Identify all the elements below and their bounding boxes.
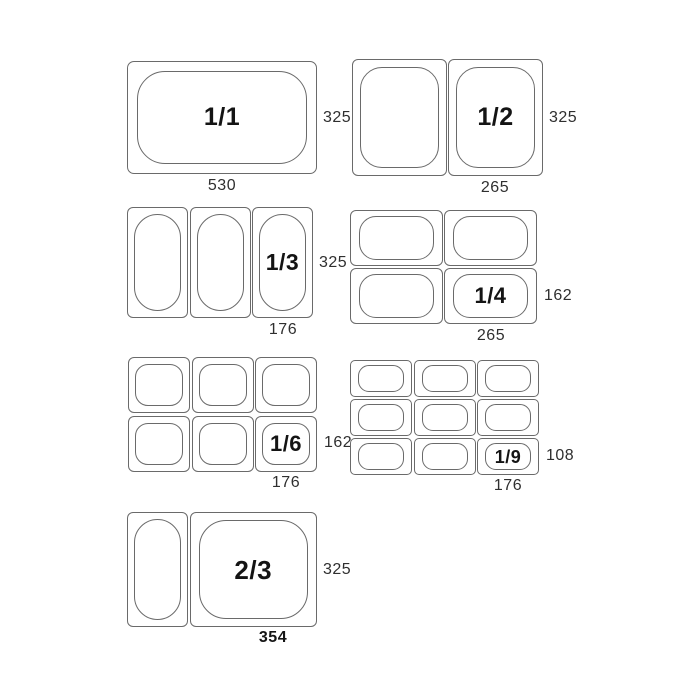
dimension-width-label: 265: [481, 180, 509, 196]
pan-1-2: [352, 59, 447, 176]
pan-1-9: [350, 399, 412, 436]
pan-opening: [422, 443, 468, 470]
pan-1-4: [350, 268, 443, 324]
pan-opening: [358, 404, 404, 431]
pan-opening: [134, 214, 181, 311]
pan-1-9: [414, 360, 476, 397]
diagram-gn-2-3: 2/3 325 354: [127, 512, 317, 627]
pan-1-4: [350, 210, 443, 266]
pan-1-9: [350, 360, 412, 397]
diagram-gn-1-6: 1/6 162 176: [128, 357, 318, 472]
pan-opening: [199, 364, 247, 406]
pan-1-6: [128, 416, 190, 472]
pan-size-label: 1/6: [270, 433, 302, 455]
dimension-height-label: 325: [323, 110, 351, 126]
pan-1-9: [350, 438, 412, 475]
pan-1-9: [414, 399, 476, 436]
pan-opening: [360, 67, 439, 168]
pan-1-6: [192, 357, 254, 413]
dimension-height-label: 325: [319, 255, 347, 271]
pan-1-2: 1/2: [448, 59, 543, 176]
pan-opening: [262, 364, 310, 406]
dimension-height-label: 325: [549, 110, 577, 126]
pan-opening: [135, 364, 183, 406]
pan-opening: 1/1: [137, 71, 307, 164]
pan-opening: [359, 274, 434, 318]
pan-opening: 1/9: [485, 443, 531, 470]
dimension-width-label: 354: [259, 630, 287, 646]
dimension-width-label: 265: [477, 328, 505, 344]
pan-opening: [134, 519, 181, 620]
pan-1-9: [414, 438, 476, 475]
pan-size-label: 1/3: [266, 251, 299, 274]
pan-opening: 2/3: [199, 520, 309, 619]
dimension-width-label: 530: [208, 178, 236, 194]
dimension-width-label: 176: [494, 478, 522, 494]
pan-size-label: 1/4: [474, 285, 506, 307]
dimension-height-label: 325: [323, 562, 351, 578]
pan-opening: 1/6: [262, 423, 310, 465]
pan-1-3: [127, 512, 188, 627]
pan-opening: [485, 365, 531, 392]
pan-2-3: 2/3: [190, 512, 318, 627]
pan-size-label: 1/9: [495, 448, 522, 466]
diagram-gn-1-2: 1/2 325 265: [352, 59, 543, 176]
pan-opening: 1/4: [453, 274, 528, 318]
pan-1-9: [477, 399, 539, 436]
pan-1-4: 1/4: [444, 268, 537, 324]
pan-opening: [422, 404, 468, 431]
pan-1-9: [477, 360, 539, 397]
pan-opening: [199, 423, 247, 465]
pan-opening: 1/2: [456, 67, 535, 168]
pan-opening: [358, 365, 404, 392]
pan-size-label: 1/2: [477, 105, 513, 130]
pan-1-3: 1/3: [252, 207, 313, 318]
pan-opening: 1/3: [259, 214, 306, 311]
pan-1-6: [255, 357, 317, 413]
diagram-gn-1-4: 1/4 162 265: [350, 210, 538, 325]
pan-1-3: [190, 207, 251, 318]
pan-opening: [453, 216, 528, 260]
dimension-height-label: 108: [546, 448, 574, 464]
dimension-width-label: 176: [269, 322, 297, 338]
pan-size-label: 1/1: [204, 105, 240, 130]
pan-1-1: 1/1: [127, 61, 317, 174]
pan-opening: [135, 423, 183, 465]
pan-size-label: 2/3: [234, 557, 272, 583]
pan-1-3: [127, 207, 188, 318]
pan-opening: [422, 365, 468, 392]
dimension-width-label: 176: [272, 475, 300, 491]
dimension-height-label: 162: [544, 288, 572, 304]
pan-opening: [197, 214, 244, 311]
pan-opening: [358, 443, 404, 470]
pan-opening: [485, 404, 531, 431]
diagram-gn-1-3: 1/3 325 176: [127, 207, 313, 318]
diagram-gn-1-9: 1/9 108 176: [350, 360, 540, 475]
pan-1-4: [444, 210, 537, 266]
gastronorm-size-chart: 1/1 325 530 1/2 325 265 1/3 325: [0, 0, 700, 700]
pan-1-9: 1/9: [477, 438, 539, 475]
pan-opening: [359, 216, 434, 260]
pan-1-6: [128, 357, 190, 413]
pan-1-6: 1/6: [255, 416, 317, 472]
dimension-height-label: 162: [324, 435, 352, 451]
pan-1-6: [192, 416, 254, 472]
diagram-gn-1-1: 1/1 325 530: [127, 61, 317, 174]
